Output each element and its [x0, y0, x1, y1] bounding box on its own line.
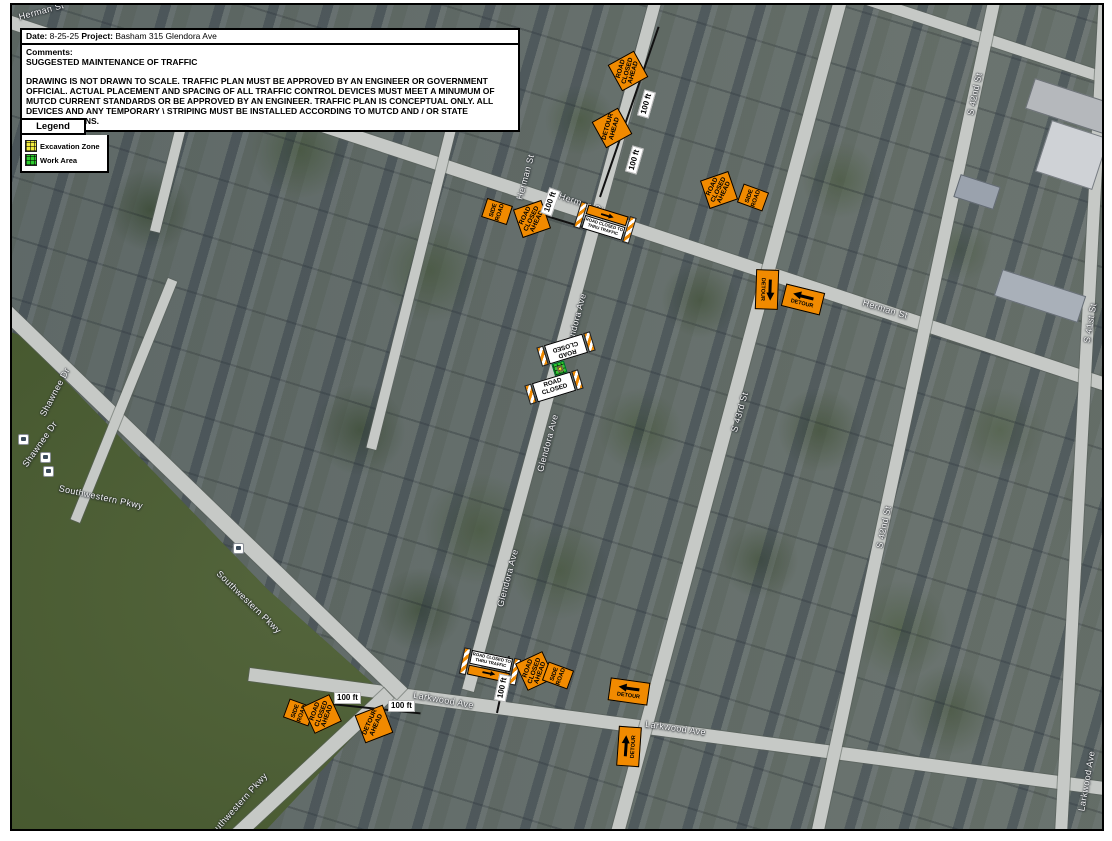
legend-label-excavation: Excavation Zone [40, 142, 100, 151]
bus-stop-icon [233, 543, 244, 554]
detour-arrow-sign: DETOUR [616, 726, 642, 768]
traffic-plan-page: Herman St Herman St Herman St Herman St … [0, 0, 1112, 841]
bus-stop-icon [40, 452, 51, 463]
legend-label-workarea: Work Area [40, 156, 77, 165]
bus-stop-icon [43, 466, 54, 477]
date-label: Date: [26, 31, 47, 41]
right-arrow-icon [600, 211, 615, 220]
right-arrow-icon [481, 669, 496, 677]
project-value: Basham 315 Glendora Ave [115, 31, 216, 41]
distance-label: 100 ft [334, 692, 361, 704]
legend-title: Legend [20, 118, 86, 135]
work-area-swatch [25, 154, 37, 166]
comments-label: Comments: [26, 47, 514, 57]
legend-item-excavation: Excavation Zone [25, 140, 105, 152]
right-arrow-icon [765, 278, 775, 300]
distance-label: 100 ft [388, 700, 415, 712]
date-value: 8-25-25 [50, 31, 79, 41]
excavation-zone-swatch [25, 140, 37, 152]
right-arrow-icon [621, 735, 632, 758]
legend-item-workarea: Work Area [25, 154, 105, 166]
plan-header: Date: 8-25-25 Project: Basham 315 Glendo… [20, 28, 520, 132]
project-label: Project: [81, 31, 113, 41]
aerial-map: Herman St Herman St Herman St Herman St … [10, 3, 1104, 831]
legend-items: Excavation Zone Work Area [20, 135, 109, 173]
excavation-zone-marker [556, 365, 563, 372]
bus-stop-icon [18, 434, 29, 445]
comments-line: SUGGESTED MAINTENANCE OF TRAFFIC [26, 57, 514, 67]
plan-title-row: Date: 8-25-25 Project: Basham 315 Glendo… [20, 28, 520, 45]
legend: Legend Excavation Zone Work Area [20, 118, 109, 173]
detour-arrow-sign: DETOUR [755, 269, 779, 310]
